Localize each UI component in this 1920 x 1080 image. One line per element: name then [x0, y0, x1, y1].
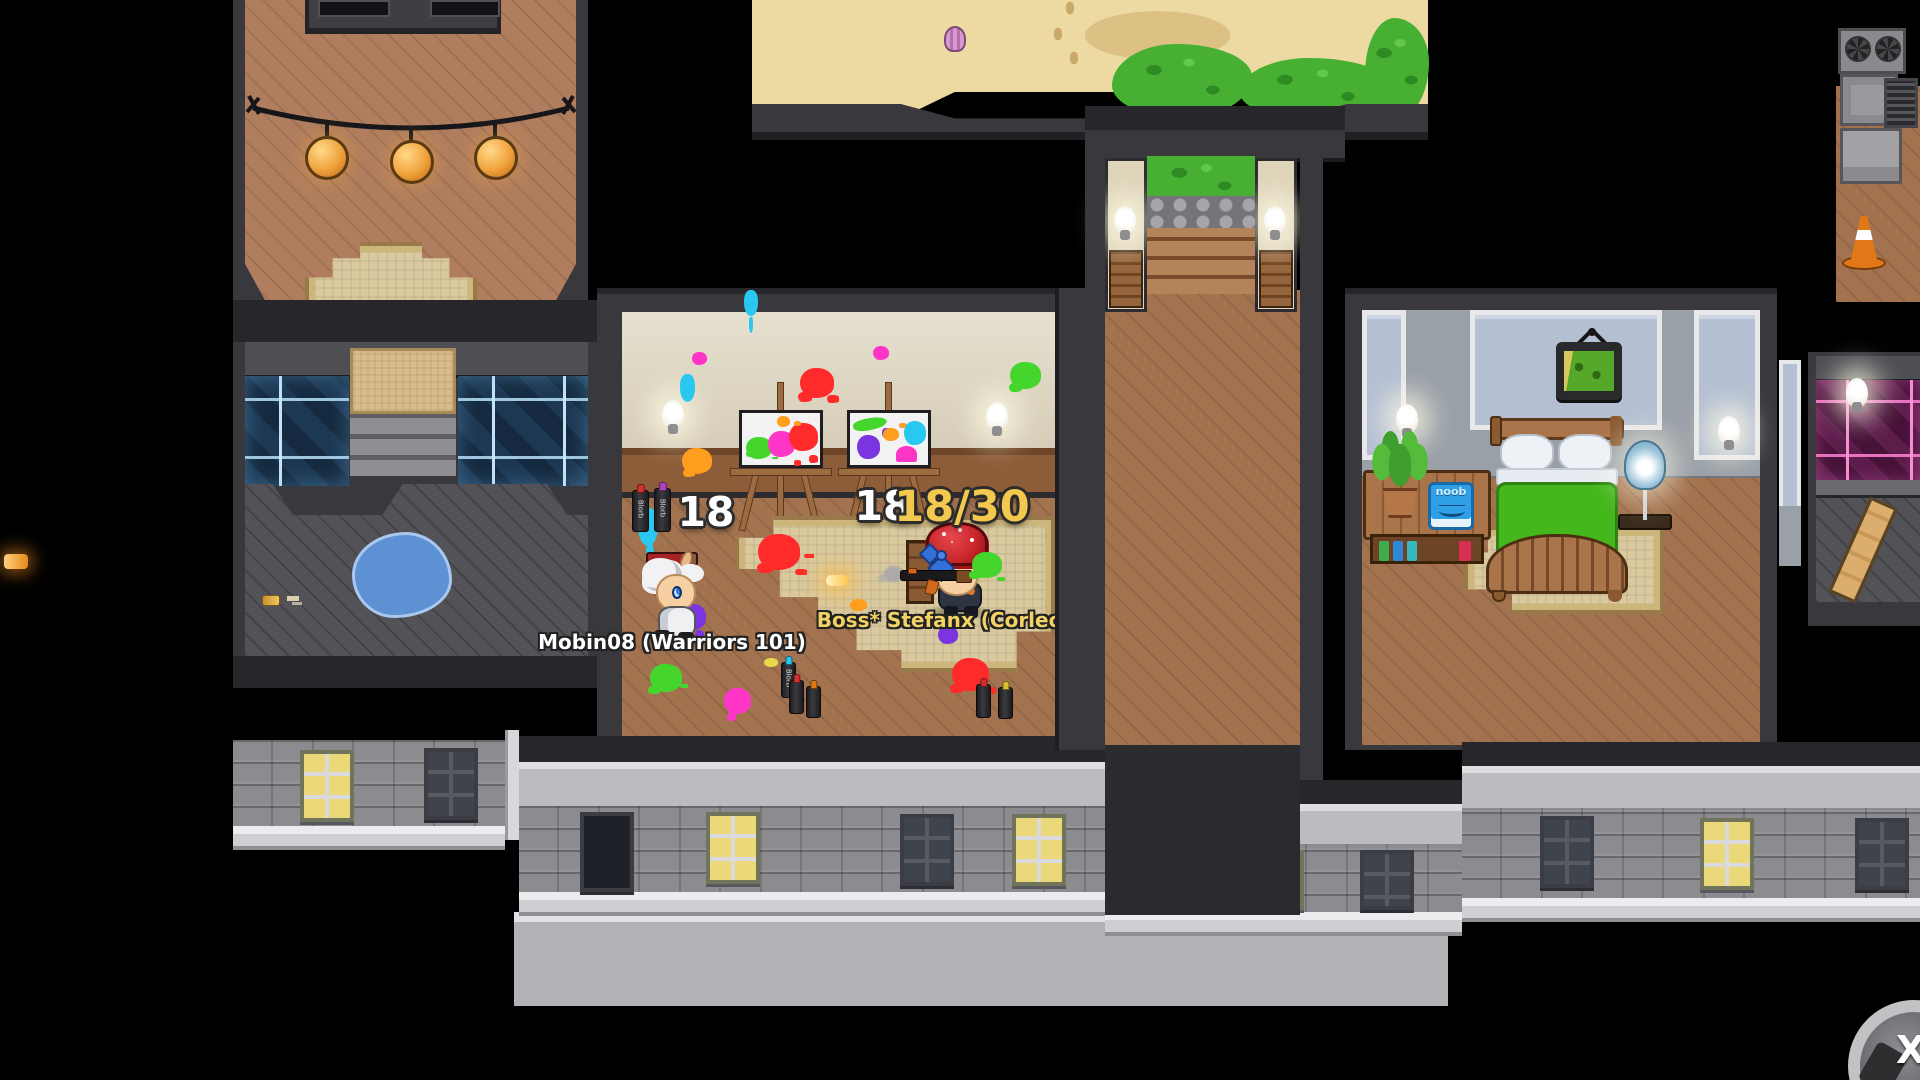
- step-mat: [350, 348, 456, 414]
- dark-window: [1540, 816, 1594, 888]
- neon-wall-blue: [245, 376, 349, 486]
- water-puddle: [352, 532, 452, 618]
- floor-lamp-pole: [1643, 486, 1647, 520]
- noob-book: noob: [1428, 482, 1474, 530]
- paint-splat: [758, 534, 800, 570]
- easel-canvas: [739, 410, 823, 468]
- wall-lamp: [1718, 416, 1740, 446]
- picture-frame: [1556, 342, 1622, 400]
- paint-splat: [857, 435, 880, 459]
- dark-window: [900, 814, 954, 886]
- corner-trim: [505, 730, 519, 840]
- wall-lamp: [986, 402, 1008, 432]
- pinkroom-walltop: [1816, 356, 1920, 382]
- building-roofband: [519, 736, 1105, 764]
- lit-window: [300, 750, 354, 822]
- table-shelf: [1370, 534, 1484, 564]
- paint-splat: [873, 346, 889, 360]
- stone-steps: [350, 414, 456, 476]
- spray-can: Blorb: [632, 490, 649, 532]
- hat-sparkles: [942, 532, 946, 536]
- pinkroom-baseboard: [1816, 480, 1920, 498]
- floor-lamp-shade: [1624, 440, 1666, 490]
- paint-splat: [680, 374, 695, 402]
- paint-splat: [789, 423, 818, 451]
- paint-splat: [852, 415, 888, 434]
- vent-grille: [1884, 78, 1918, 128]
- spray-can-cap: [658, 482, 666, 491]
- wall-lamp: [1846, 378, 1868, 408]
- bed-footboard: [1486, 534, 1628, 594]
- building-trim: [1462, 898, 1920, 922]
- lantern: [305, 136, 349, 180]
- paint-splat: [650, 664, 682, 692]
- lit-window: [706, 812, 760, 884]
- bed-pillow: [1558, 434, 1612, 472]
- sand-footprints: [1040, 0, 1100, 70]
- paint-splat: [744, 290, 758, 316]
- cone-body: [1850, 216, 1878, 264]
- metal-cabinet: [1840, 128, 1902, 184]
- building-band: [1462, 766, 1920, 810]
- room-divider: [233, 300, 600, 342]
- dark-window: [424, 748, 478, 820]
- fan-icon: [1875, 36, 1901, 62]
- spray-can-cap: [1002, 681, 1009, 690]
- spray-can-cap: [793, 674, 800, 683]
- spray-can-cap: [980, 678, 987, 687]
- paint-splat: [904, 421, 926, 445]
- spray-can: Blorb: [654, 488, 671, 532]
- neon-wall-blue: [458, 376, 588, 486]
- lantern: [390, 140, 434, 184]
- paint-splat: [1010, 362, 1041, 389]
- paint-splat: [777, 416, 790, 427]
- corridor-floor: [1105, 290, 1301, 745]
- plant-leaves: [1368, 428, 1432, 490]
- close-button[interactable]: X: [1848, 1000, 1920, 1080]
- billiard-screen: [430, 0, 500, 17]
- wall-lamp: [662, 400, 684, 430]
- building-wall: [1462, 808, 1920, 900]
- paintroom-right-wall: [1055, 288, 1105, 750]
- paint-progress: 18/30: [894, 482, 1029, 532]
- stray-glow: [4, 554, 28, 569]
- paint-splat: [764, 658, 778, 667]
- fan-unit: [1838, 28, 1906, 74]
- lantern: [474, 136, 518, 180]
- wall-lamp: [1114, 206, 1136, 236]
- shelf-book: [1459, 541, 1471, 561]
- bed-pillow: [1500, 434, 1554, 472]
- noob-book-label: noob: [1431, 485, 1471, 498]
- bed-foot: [1492, 590, 1506, 602]
- paint-splat: [883, 428, 899, 441]
- building-trim: [519, 892, 1105, 916]
- dark-window: [1360, 850, 1414, 910]
- easel-tray: [838, 468, 940, 476]
- paint-splat: [692, 352, 707, 365]
- spray-can: [789, 680, 804, 714]
- spray-can-label: Blorb: [659, 499, 667, 517]
- corridor-steps: [1147, 228, 1255, 294]
- dark-window: [1855, 818, 1909, 890]
- paint-splat: [682, 448, 712, 474]
- paint-splat: [724, 688, 751, 714]
- spray-can-cap: [810, 680, 817, 689]
- traffic-cone: [1842, 214, 1886, 270]
- seashell: [944, 26, 966, 52]
- hat-bow-knot: [936, 550, 947, 561]
- dark-doorway: [580, 812, 634, 892]
- lit-window: [1012, 814, 1066, 886]
- bed-post: [1490, 416, 1502, 446]
- paint-splat: [972, 552, 1002, 578]
- spray-can-cap: [785, 656, 792, 665]
- building-trim: [233, 826, 505, 850]
- character-eye: [672, 586, 682, 599]
- corridor-passage: [1105, 745, 1300, 915]
- fan-icon: [1845, 36, 1871, 62]
- easel-tray: [730, 468, 832, 476]
- bullet-tracer: [826, 575, 848, 586]
- ak47-stock: [956, 570, 972, 583]
- easel-canvas: [847, 410, 931, 468]
- billiard-screen: [318, 0, 390, 17]
- easel-count-left: 18: [677, 488, 734, 536]
- corridor-roof: [1085, 106, 1345, 132]
- wall-lamp: [1264, 206, 1286, 236]
- shelf-book: [1393, 541, 1403, 561]
- cobblestone-wall: [1147, 196, 1255, 230]
- close-button-label: X: [1896, 1028, 1920, 1072]
- building-roofband: [1462, 742, 1920, 768]
- player1-nameplate: Mobin08 (Warriors 101): [538, 630, 806, 654]
- neon-wall-pink: [1816, 380, 1920, 482]
- spray-can: [806, 686, 821, 718]
- spray-can: [998, 687, 1013, 719]
- paint-splat: [896, 446, 917, 462]
- building-band: [519, 762, 1105, 808]
- spray-can: [976, 684, 991, 718]
- bullet-casing: [262, 595, 280, 606]
- blueroom-bottom-wall: [233, 656, 600, 688]
- shelf-book: [1407, 541, 1417, 561]
- bedroom-wall-sliver: [1779, 506, 1801, 566]
- spray-can-cap: [636, 484, 644, 493]
- picture-art: [1564, 351, 1614, 391]
- noob-book-face: [1439, 505, 1465, 517]
- game-viewport[interactable]: Blorb Blorb Blorb 18 18 18/30 Mobin08 (W…: [0, 0, 1920, 1080]
- bed: [1490, 416, 1624, 606]
- spray-can-label: Blorb: [637, 500, 645, 518]
- paint-splat: [800, 368, 834, 398]
- building-trim: [1105, 912, 1462, 936]
- ak47-grip: [908, 568, 917, 574]
- pillar-shutter: [1109, 250, 1143, 308]
- bedroom-window: [1779, 360, 1801, 510]
- lit-window: [1700, 818, 1754, 890]
- pillar-shutter: [1259, 250, 1293, 308]
- shelf-book: [1379, 541, 1389, 561]
